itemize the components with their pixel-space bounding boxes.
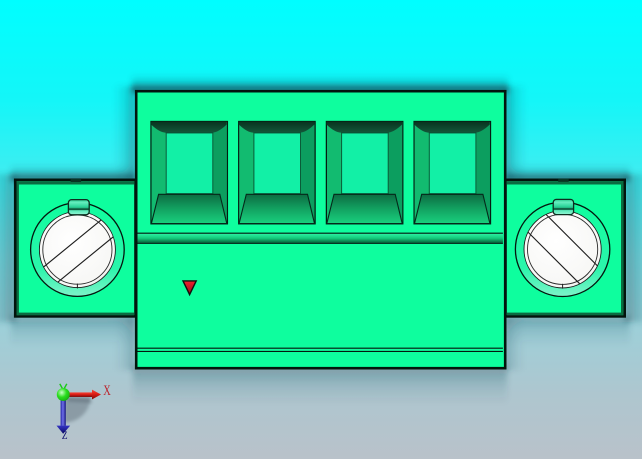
svg-text:X: X <box>103 382 111 398</box>
svg-text:Z: Z <box>62 429 68 442</box>
